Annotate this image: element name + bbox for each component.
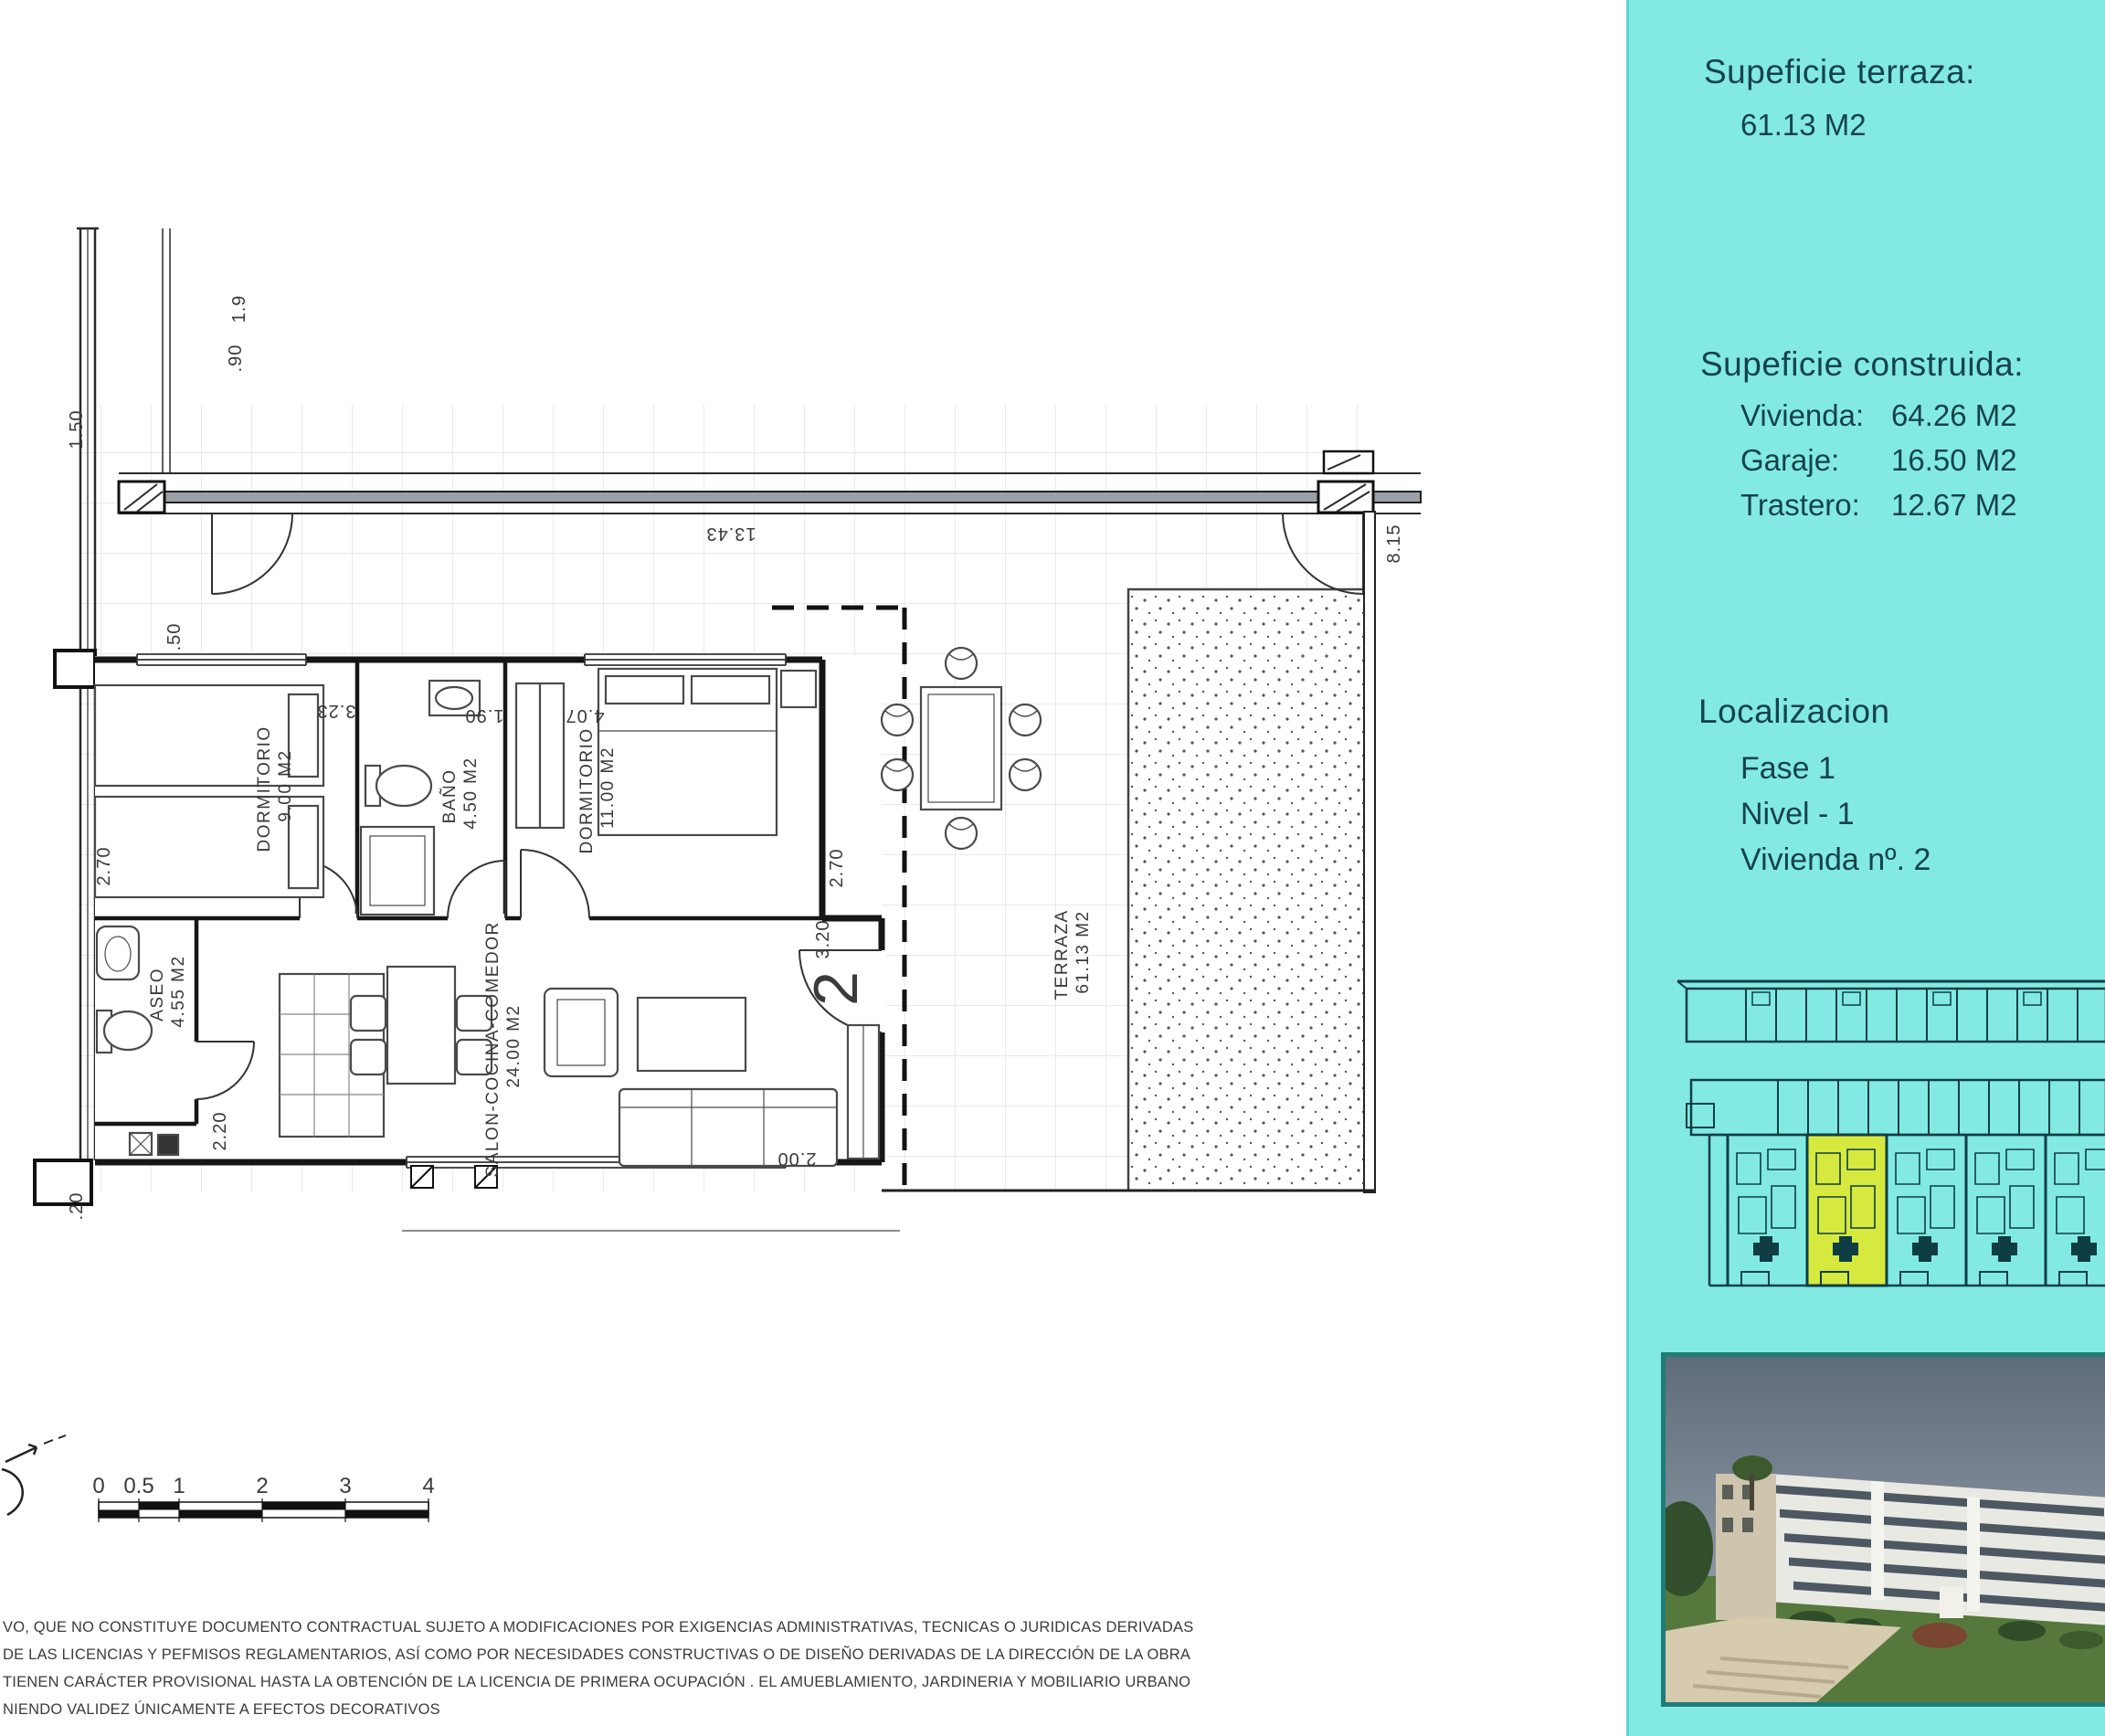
- info-sidebar: Supeficie terraza: 61.13 M2 Supeficie co…: [1626, 0, 2105, 1736]
- page: DORMITORIO 9.00 M2 BAÑO 4.50 M2 DORMITOR…: [0, 0, 2105, 1736]
- location-fase: Fase 1: [1740, 751, 1930, 797]
- dim-aseo-height: 2.20: [210, 1112, 230, 1151]
- built-value: 64.26 M2: [1891, 398, 2017, 443]
- scale-label-2: 2: [256, 1474, 268, 1498]
- dim-right-depth: 8.15: [1384, 524, 1404, 564]
- north-arrow-sketch: [2, 1435, 66, 1515]
- built-row-trastero: Trastero: 12.67 M2: [1740, 488, 2017, 533]
- scale-label-05: 0.5: [123, 1474, 153, 1498]
- built-value: 12.67 M2: [1891, 488, 2017, 533]
- location-vivienda: Vivienda nº. 2: [1740, 842, 1930, 888]
- siteplan-unit-details: [1737, 1149, 2105, 1233]
- terrace-surface-title: Supeficie terraza:: [1704, 53, 1975, 91]
- scale-label-3: 3: [339, 1474, 351, 1498]
- location-title: Localizacion: [1698, 693, 1890, 731]
- disclaimer-line-4: NIENDO VALIDEZ ÚNICAMENTE A EFECTOS DECO…: [3, 1696, 1193, 1723]
- disclaimer-line-1: VO, QUE NO CONSTITUYE DOCUMENTO CONTRACT…: [3, 1614, 1193, 1641]
- development-photo: [1661, 1352, 2105, 1707]
- terrace-surface-value: 61.13 M2: [1740, 108, 1867, 143]
- unit-number: 2: [801, 971, 871, 1006]
- built-surface-rows: Vivienda: 64.26 M2 Garaje: 16.50 M2 Tras…: [1740, 398, 2017, 533]
- dim-top-width: 13.43: [705, 524, 756, 544]
- scale-label-4: 4: [422, 1474, 434, 1498]
- built-row-vivienda: Vivienda: 64.26 M2: [1740, 398, 2017, 443]
- location-nivel: Nivel - 1: [1740, 797, 1930, 842]
- dim-top-door-b: .90: [226, 344, 246, 373]
- built-label: Garaje:: [1740, 443, 1891, 488]
- dim-top-door-a: 1.9: [229, 295, 249, 323]
- dim-bottom-left: .20: [67, 1192, 87, 1221]
- scale-label-1: 1: [173, 1474, 185, 1498]
- built-surface-title: Supeficie construida:: [1700, 345, 2024, 384]
- dim-left-top: 1.50: [67, 410, 87, 450]
- dim-left-height: 2.70: [94, 847, 114, 886]
- built-row-garaje: Garaje: 16.50 M2: [1740, 443, 2017, 488]
- dim-bottom-door: 2.00: [777, 1149, 817, 1169]
- dim-bed1-width: 3.23: [317, 701, 356, 721]
- location-rows: Fase 1 Nivel - 1 Vivienda nº. 2: [1740, 751, 1930, 888]
- built-label: Trastero:: [1740, 488, 1891, 533]
- gravel-strip: [1128, 589, 1364, 1191]
- built-value: 16.50 M2: [1891, 443, 2017, 488]
- dim-entry-depth: 3.20: [813, 920, 833, 959]
- siteplan-map: [1641, 970, 2105, 1325]
- disclaimer-text: VO, QUE NO CONSTITUYE DOCUMENTO CONTRACT…: [3, 1614, 1193, 1723]
- disclaimer-line-2: DE LAS LICENCIAS Y PEFMISOS REGLAMENTARI…: [3, 1641, 1193, 1668]
- floor-plan-drawing: DORMITORIO 9.00 M2 BAÑO 4.50 M2 DORMITOR…: [0, 0, 1626, 1736]
- dim-bed2-height: 2.70: [827, 849, 847, 888]
- dim-hall: .50: [164, 623, 185, 651]
- photo-buildings: [1716, 1474, 2105, 1626]
- scale-bar: 0 0.5 1 2 3 4: [92, 1474, 434, 1522]
- dim-bath-width: 1.90: [465, 705, 504, 725]
- built-label: Vivienda:: [1740, 398, 1891, 443]
- dim-bed2-width: 4.07: [566, 705, 605, 725]
- disclaimer-line-3: TIENEN CARÁCTER PROVISIONAL HASTA LA OBT…: [3, 1668, 1193, 1696]
- scale-label-0: 0: [92, 1474, 104, 1498]
